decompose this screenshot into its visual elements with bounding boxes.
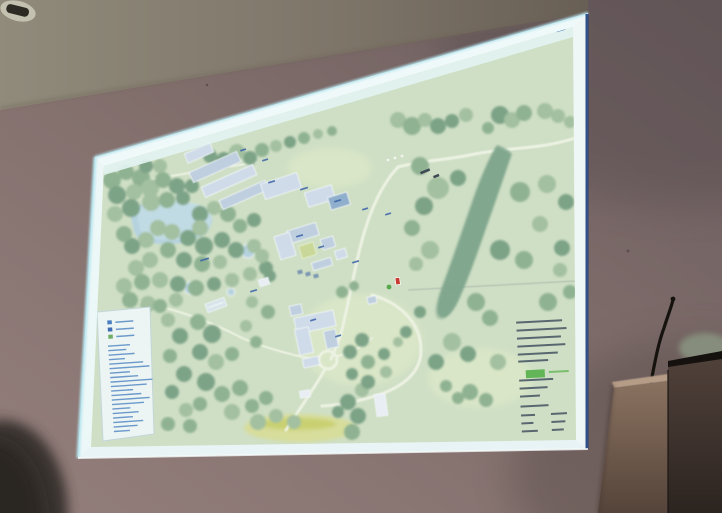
tree [232, 380, 248, 396]
tree [482, 122, 494, 134]
tree [250, 414, 266, 430]
tree [207, 277, 221, 291]
tree [128, 260, 144, 276]
tree [482, 310, 498, 326]
tree [313, 129, 323, 139]
tree [176, 366, 192, 382]
tree [195, 237, 213, 255]
tree [193, 397, 207, 411]
tree [122, 199, 140, 217]
tree [287, 415, 301, 429]
legend-bullet-icon [108, 335, 113, 339]
tree [126, 184, 142, 200]
tree [153, 299, 167, 313]
tree [208, 354, 224, 370]
tree [479, 393, 493, 407]
tree [170, 276, 186, 292]
tree [269, 409, 283, 423]
map-legend [97, 307, 156, 441]
tree [138, 232, 154, 248]
tree [134, 274, 150, 290]
tree [228, 242, 244, 258]
tree [467, 293, 485, 311]
tree [400, 326, 412, 338]
tree [142, 193, 160, 211]
tree [180, 230, 196, 246]
tree [203, 325, 221, 343]
tree [107, 206, 123, 222]
tree [259, 391, 273, 405]
tree [340, 394, 356, 410]
microphone-tip [671, 297, 676, 302]
car-dot [387, 159, 390, 162]
tree [188, 280, 204, 296]
tree [243, 267, 257, 281]
tree [409, 257, 423, 271]
car-dot [394, 157, 397, 160]
tree [414, 306, 426, 318]
tree [532, 216, 548, 232]
tree [361, 375, 375, 389]
tree [428, 354, 444, 370]
tree [430, 118, 446, 134]
photo-of-projection-room [0, 0, 722, 513]
scene-canvas [0, 0, 722, 513]
tree [169, 293, 183, 307]
tree [510, 182, 530, 202]
tree [415, 197, 433, 215]
tree [183, 419, 197, 433]
tree [159, 192, 175, 208]
tree [336, 286, 348, 298]
tree [192, 206, 208, 222]
tree [427, 177, 449, 199]
tree [197, 373, 215, 391]
tree [539, 293, 557, 311]
legend-bullet-icon [108, 327, 113, 331]
tree [192, 344, 208, 360]
legend-panel [97, 307, 154, 441]
titleblock-green-swatch [526, 369, 545, 378]
tree [255, 249, 269, 263]
tree [122, 292, 138, 308]
tree [332, 406, 344, 418]
tree [558, 194, 574, 210]
tree [350, 408, 366, 424]
tree [152, 272, 168, 288]
tree [155, 172, 171, 188]
tree [440, 380, 452, 392]
tree [343, 345, 357, 359]
tree [462, 384, 478, 400]
tree [165, 385, 179, 399]
wall-speck [627, 250, 630, 253]
pond [227, 288, 235, 296]
tree [153, 159, 167, 173]
tree [150, 220, 166, 236]
building [367, 296, 377, 305]
car-dot [401, 155, 404, 158]
tree [404, 220, 420, 236]
tree [172, 328, 188, 344]
tree [142, 252, 158, 268]
tree [240, 320, 252, 332]
tree [344, 424, 360, 440]
tree [418, 113, 432, 127]
tree [349, 281, 359, 291]
tree [538, 175, 556, 193]
tree [246, 296, 258, 308]
tree [116, 226, 132, 242]
tree [225, 347, 239, 361]
tree [298, 132, 310, 144]
tree [445, 114, 459, 128]
tree [190, 314, 206, 330]
tree [176, 191, 190, 205]
tree [161, 313, 175, 327]
tree [537, 103, 553, 119]
legend-bullet-icon [107, 320, 112, 324]
tree [255, 143, 269, 157]
wall-speck [206, 84, 209, 87]
tree [261, 305, 275, 319]
tree [225, 273, 239, 287]
tree [214, 232, 230, 248]
tree [179, 403, 193, 417]
lectern-side-panel [668, 359, 722, 513]
tree [346, 368, 358, 380]
tree [459, 108, 473, 122]
tree [207, 201, 221, 215]
building [289, 304, 303, 316]
tree [393, 337, 403, 347]
tree [163, 349, 177, 363]
tree [361, 355, 375, 369]
tree [378, 348, 390, 360]
tree [490, 354, 506, 370]
tree [224, 404, 240, 420]
tree [355, 333, 369, 347]
tree [327, 126, 337, 136]
tree [213, 255, 227, 269]
tree [160, 242, 176, 258]
tree [515, 251, 533, 269]
tree [460, 346, 476, 362]
tree [233, 219, 247, 233]
tree [553, 263, 567, 277]
tree [284, 136, 296, 148]
tree [245, 399, 259, 413]
tree [380, 366, 392, 378]
tree [443, 333, 461, 351]
tree [516, 105, 532, 121]
tree [214, 386, 230, 402]
tree [116, 278, 132, 294]
tree [450, 170, 466, 186]
tree [411, 157, 429, 175]
red-marker [395, 277, 400, 285]
green-marker [387, 285, 392, 290]
tree [108, 186, 126, 204]
tree [247, 213, 261, 227]
tree [452, 392, 464, 404]
tree [243, 151, 257, 165]
open-field [288, 148, 372, 188]
tree [421, 241, 439, 259]
tree [490, 240, 510, 260]
tree [164, 224, 180, 240]
building [299, 390, 310, 399]
tree [161, 417, 175, 431]
tree [176, 252, 192, 268]
tree [250, 336, 262, 348]
tree [270, 140, 282, 152]
tree [554, 240, 570, 256]
tree [551, 109, 565, 123]
